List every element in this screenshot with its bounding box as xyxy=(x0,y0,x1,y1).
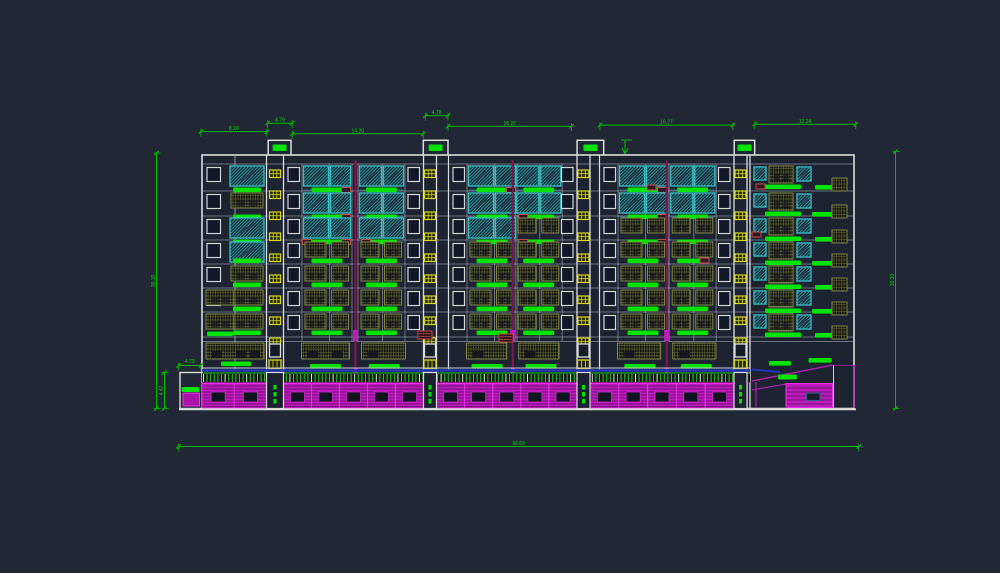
svg-text:36.30: 36.30 xyxy=(890,274,896,287)
svg-text:12.24: 12.24 xyxy=(799,119,812,125)
svg-text:16.27: 16.27 xyxy=(660,120,673,126)
svg-text:4.79: 4.79 xyxy=(275,118,285,124)
svg-text:4.79: 4.79 xyxy=(432,110,442,116)
svg-text:36.30: 36.30 xyxy=(151,274,157,287)
svg-text:8.10: 8.10 xyxy=(229,126,239,132)
svg-text:16.27: 16.27 xyxy=(503,121,516,127)
svg-text:14.20: 14.20 xyxy=(352,128,365,134)
svg-text:4.79: 4.79 xyxy=(185,359,195,365)
svg-text:92.69: 92.69 xyxy=(512,441,525,447)
svg-text:4.47: 4.47 xyxy=(159,385,165,395)
